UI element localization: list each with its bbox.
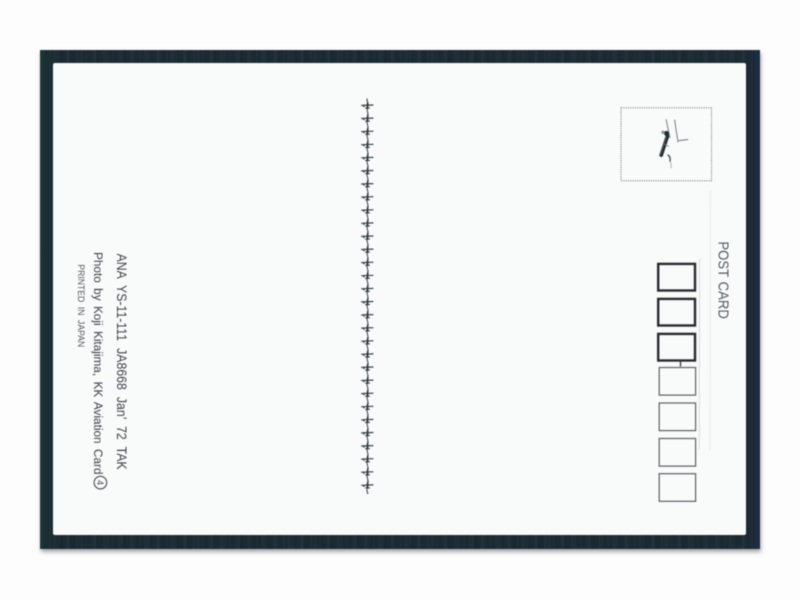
- svg-text:POST CARD: POST CARD: [715, 241, 731, 319]
- svg-text:4: 4: [95, 480, 105, 485]
- svg-text:ANA YS-11-111 JA8668 Jan’ 72 T: ANA YS-11-111 JA8668 Jan’ 72 TAK: [114, 254, 129, 470]
- svg-text:PRINTED IN JAPAN: PRINTED IN JAPAN: [75, 264, 86, 347]
- svg-text:Photo by Koji Kitajima, KK Avi: Photo by Koji Kitajima, KK Aviation Card: [91, 252, 105, 475]
